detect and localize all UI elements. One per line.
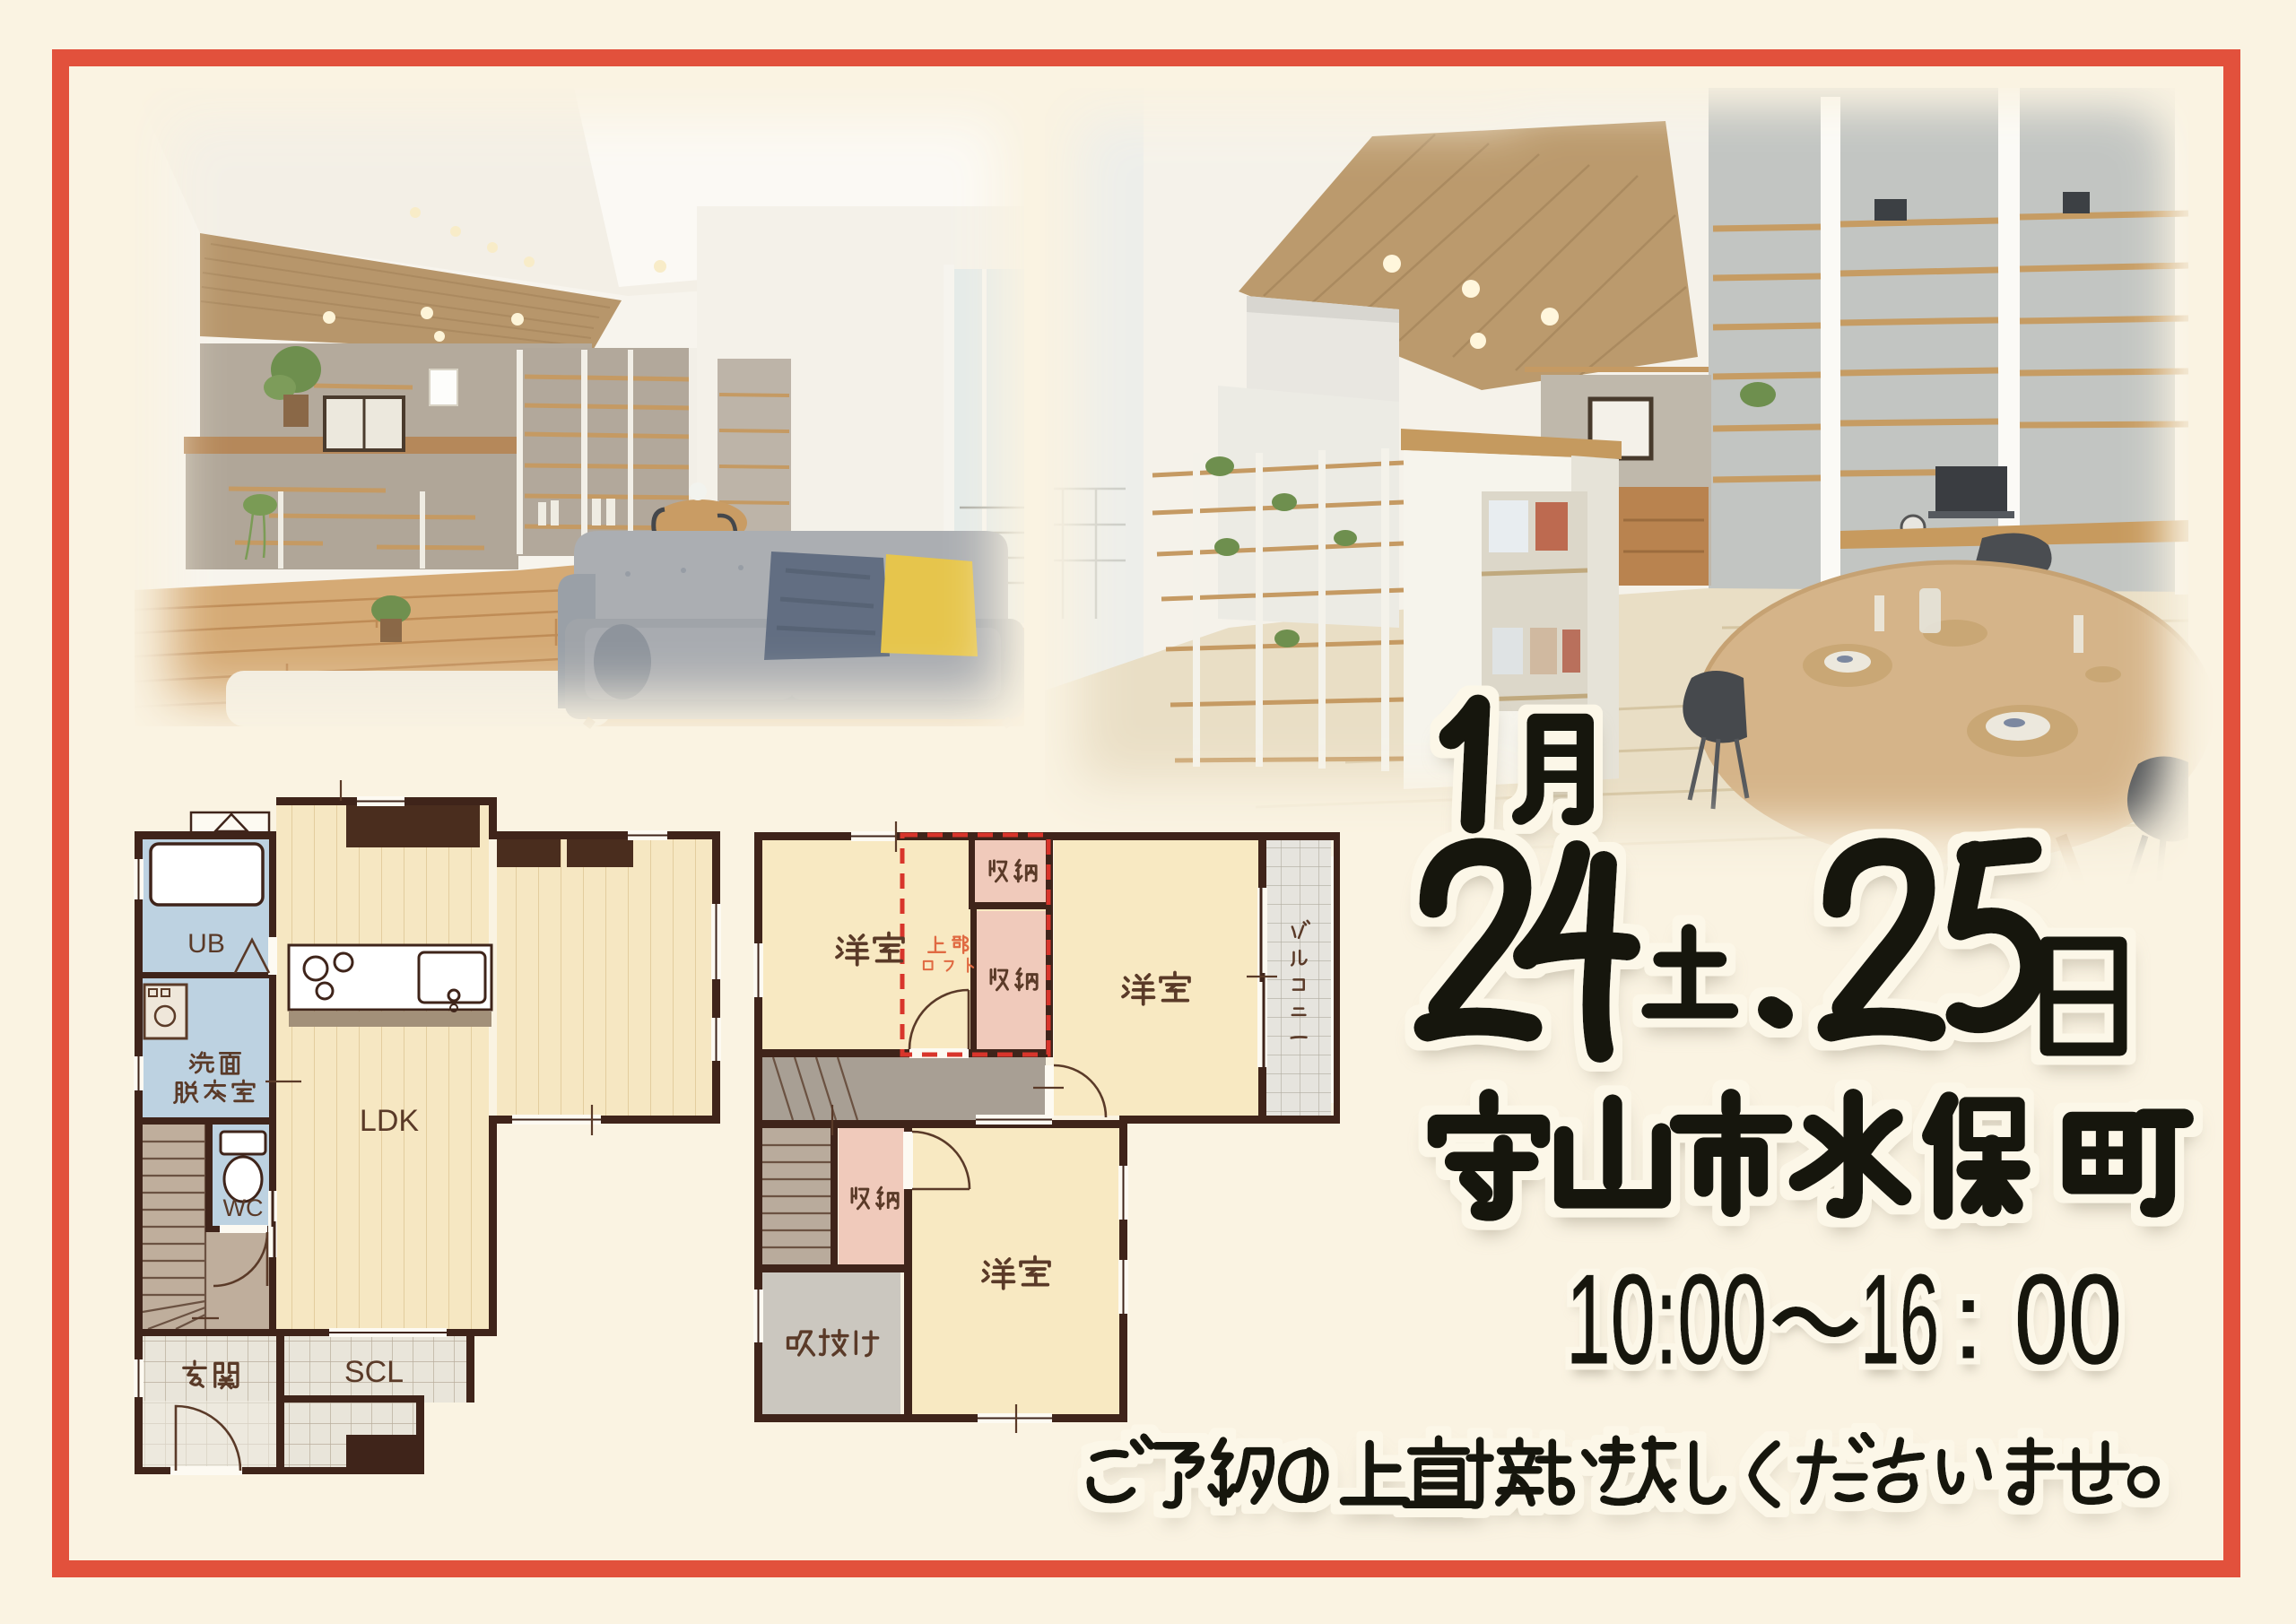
svg-text:SCL: SCL — [344, 1355, 404, 1389]
svg-text:WC: WC — [223, 1194, 264, 1221]
svg-text:LDK: LDK — [360, 1104, 419, 1138]
svg-text:UB: UB — [187, 929, 225, 959]
